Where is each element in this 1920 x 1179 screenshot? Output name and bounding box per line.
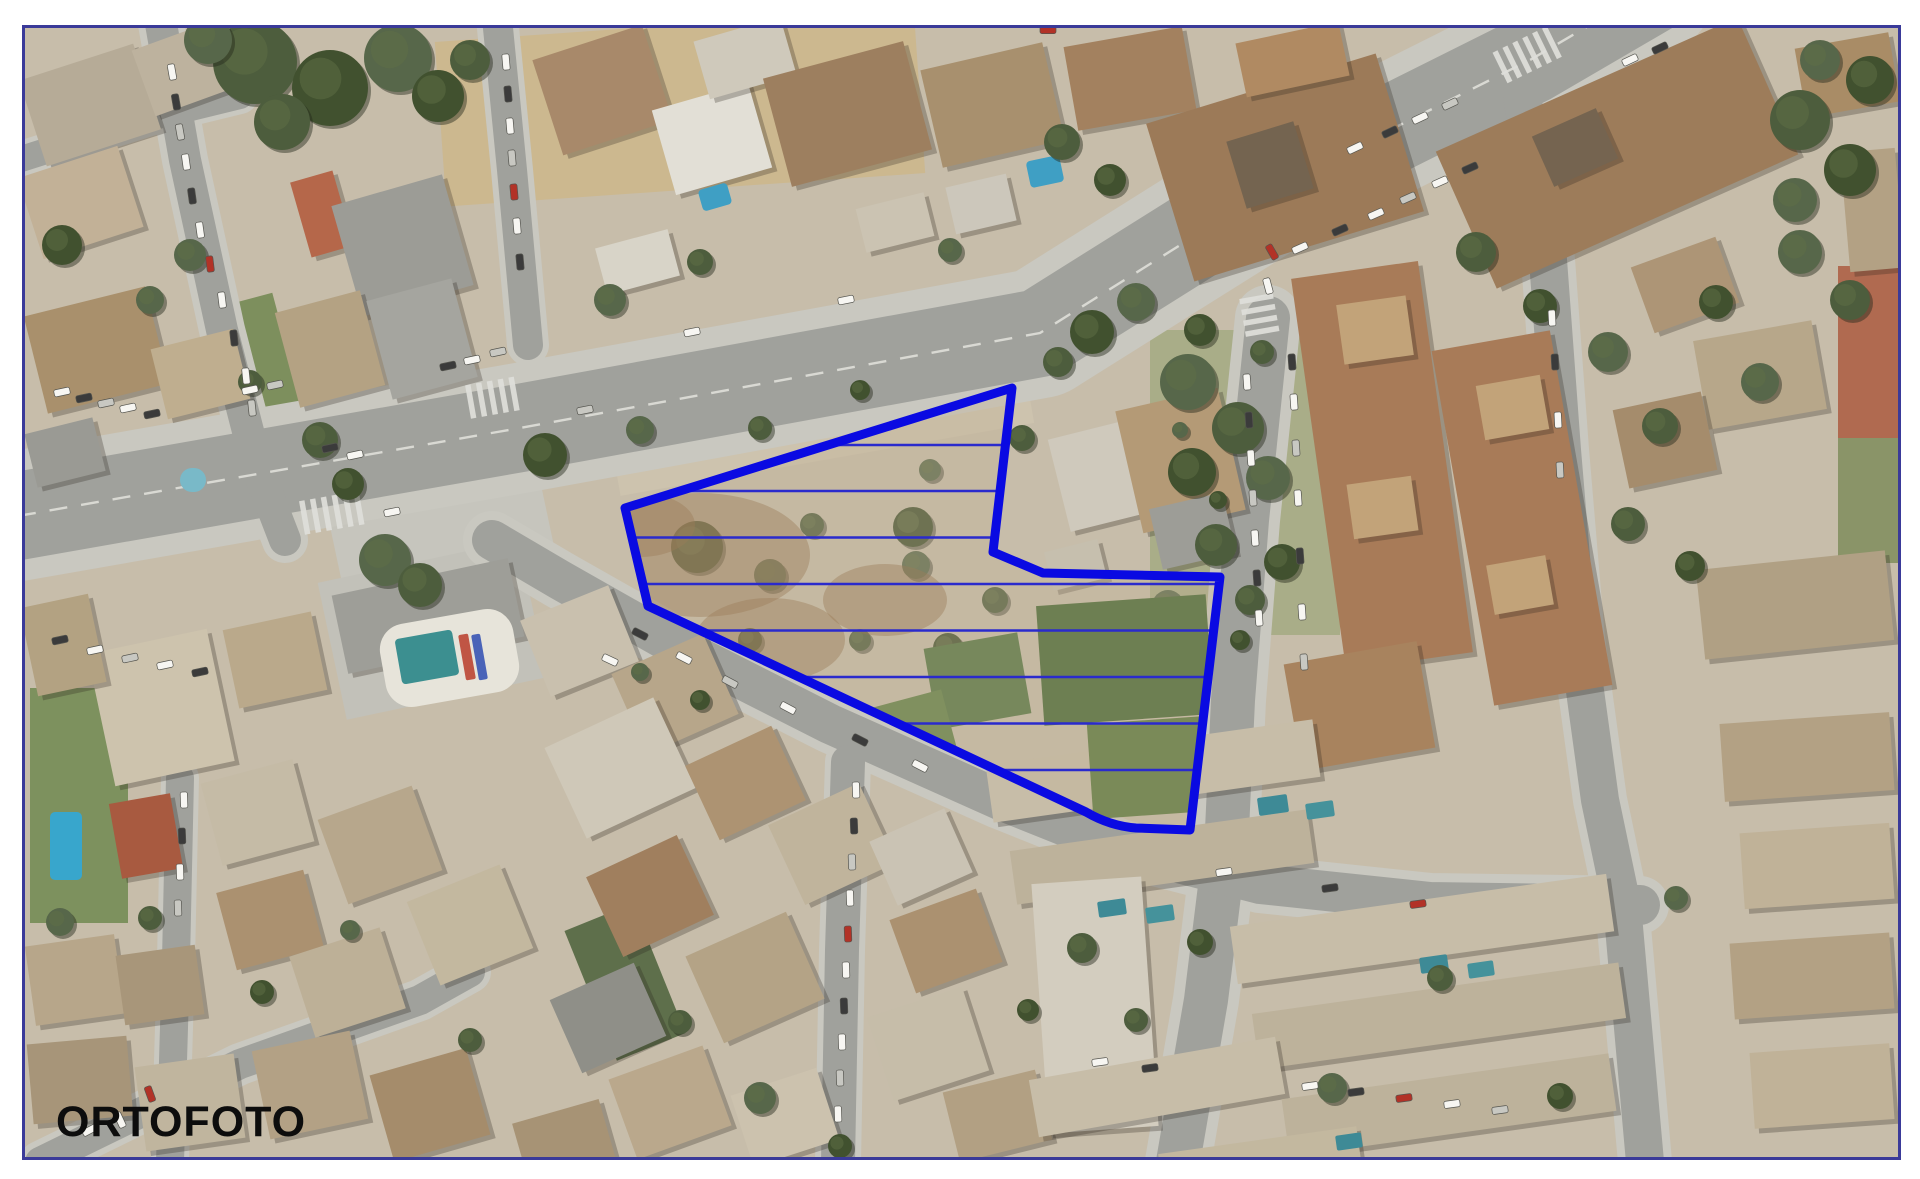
map-label: ORTOFOTO	[56, 1098, 306, 1147]
ortofoto-map	[0, 0, 1920, 1179]
photo-layers	[17, 0, 1909, 1179]
ortofoto-page: ORTOFOTO	[0, 0, 1920, 1179]
